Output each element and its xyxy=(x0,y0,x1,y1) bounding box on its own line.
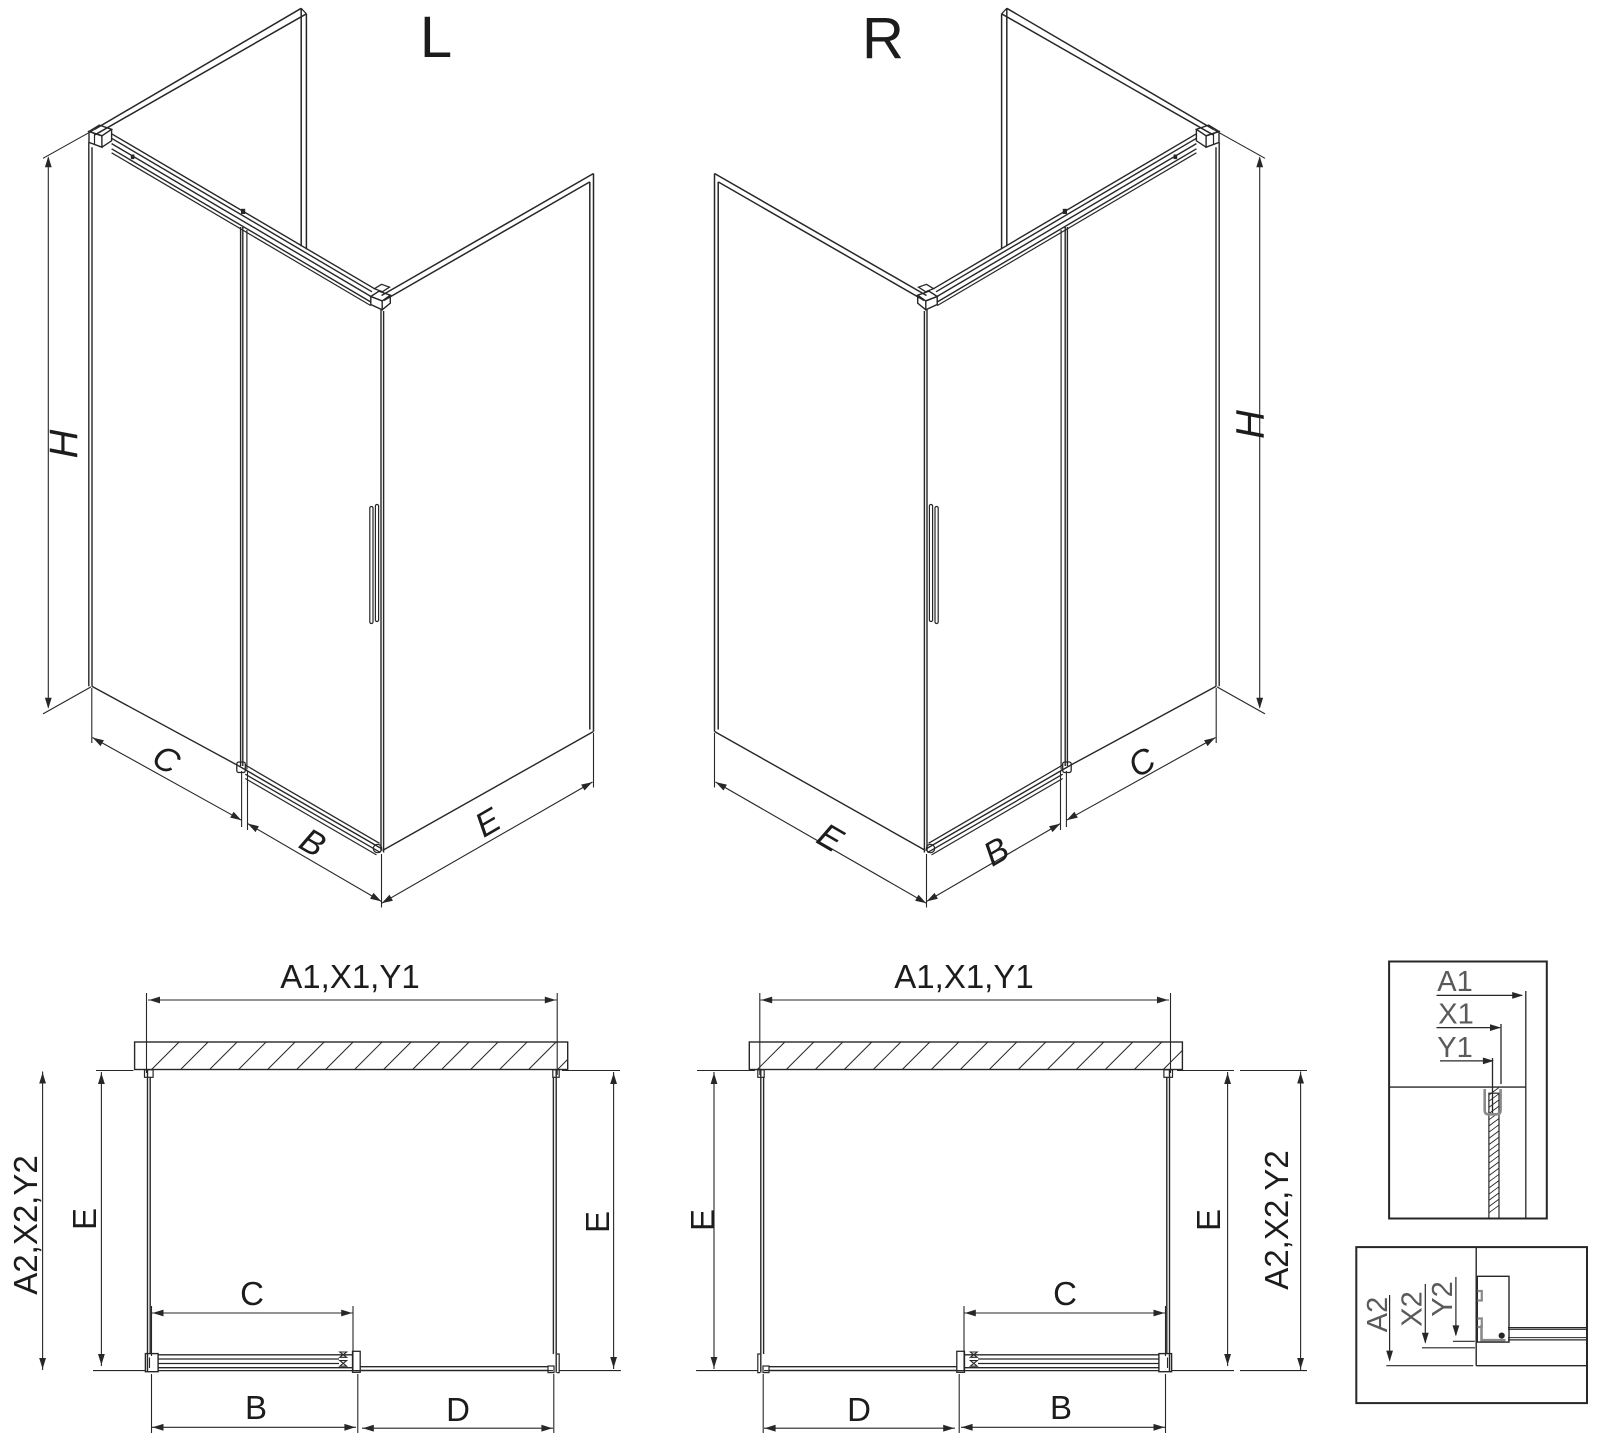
svg-text:D: D xyxy=(446,1391,470,1428)
svg-text:B: B xyxy=(245,1389,267,1426)
svg-text:E: E xyxy=(811,816,850,860)
svg-text:B: B xyxy=(1050,1389,1072,1426)
svg-text:B: B xyxy=(293,821,332,865)
svg-text:C: C xyxy=(146,737,187,782)
svg-text:C: C xyxy=(1053,1275,1077,1312)
svg-text:Y1: Y1 xyxy=(1437,1032,1472,1064)
svg-text:C: C xyxy=(240,1275,264,1312)
svg-text:L: L xyxy=(420,5,452,70)
svg-text:A1: A1 xyxy=(1437,966,1472,998)
svg-text:X1: X1 xyxy=(1438,999,1473,1031)
svg-text:H: H xyxy=(1229,410,1273,439)
svg-text:E: E xyxy=(1190,1209,1227,1231)
svg-text:A2,X2,Y2: A2,X2,Y2 xyxy=(1258,1150,1295,1289)
svg-text:B: B xyxy=(977,830,1016,874)
svg-text:A2,X2,Y2: A2,X2,Y2 xyxy=(7,1155,44,1294)
svg-text:E: E xyxy=(579,1211,616,1233)
svg-text:D: D xyxy=(847,1391,871,1428)
svg-text:C: C xyxy=(1122,740,1163,785)
svg-text:E: E xyxy=(66,1208,103,1230)
svg-text:H: H xyxy=(42,429,86,458)
svg-text:E: E xyxy=(469,801,508,845)
svg-text:A2: A2 xyxy=(1362,1297,1394,1332)
svg-text:E: E xyxy=(684,1209,721,1231)
svg-text:R: R xyxy=(862,6,904,71)
svg-text:Y2: Y2 xyxy=(1427,1281,1459,1316)
svg-text:A1,X1,Y1: A1,X1,Y1 xyxy=(894,958,1033,995)
svg-text:A1,X1,Y1: A1,X1,Y1 xyxy=(280,958,419,995)
svg-text:X2: X2 xyxy=(1397,1291,1429,1326)
